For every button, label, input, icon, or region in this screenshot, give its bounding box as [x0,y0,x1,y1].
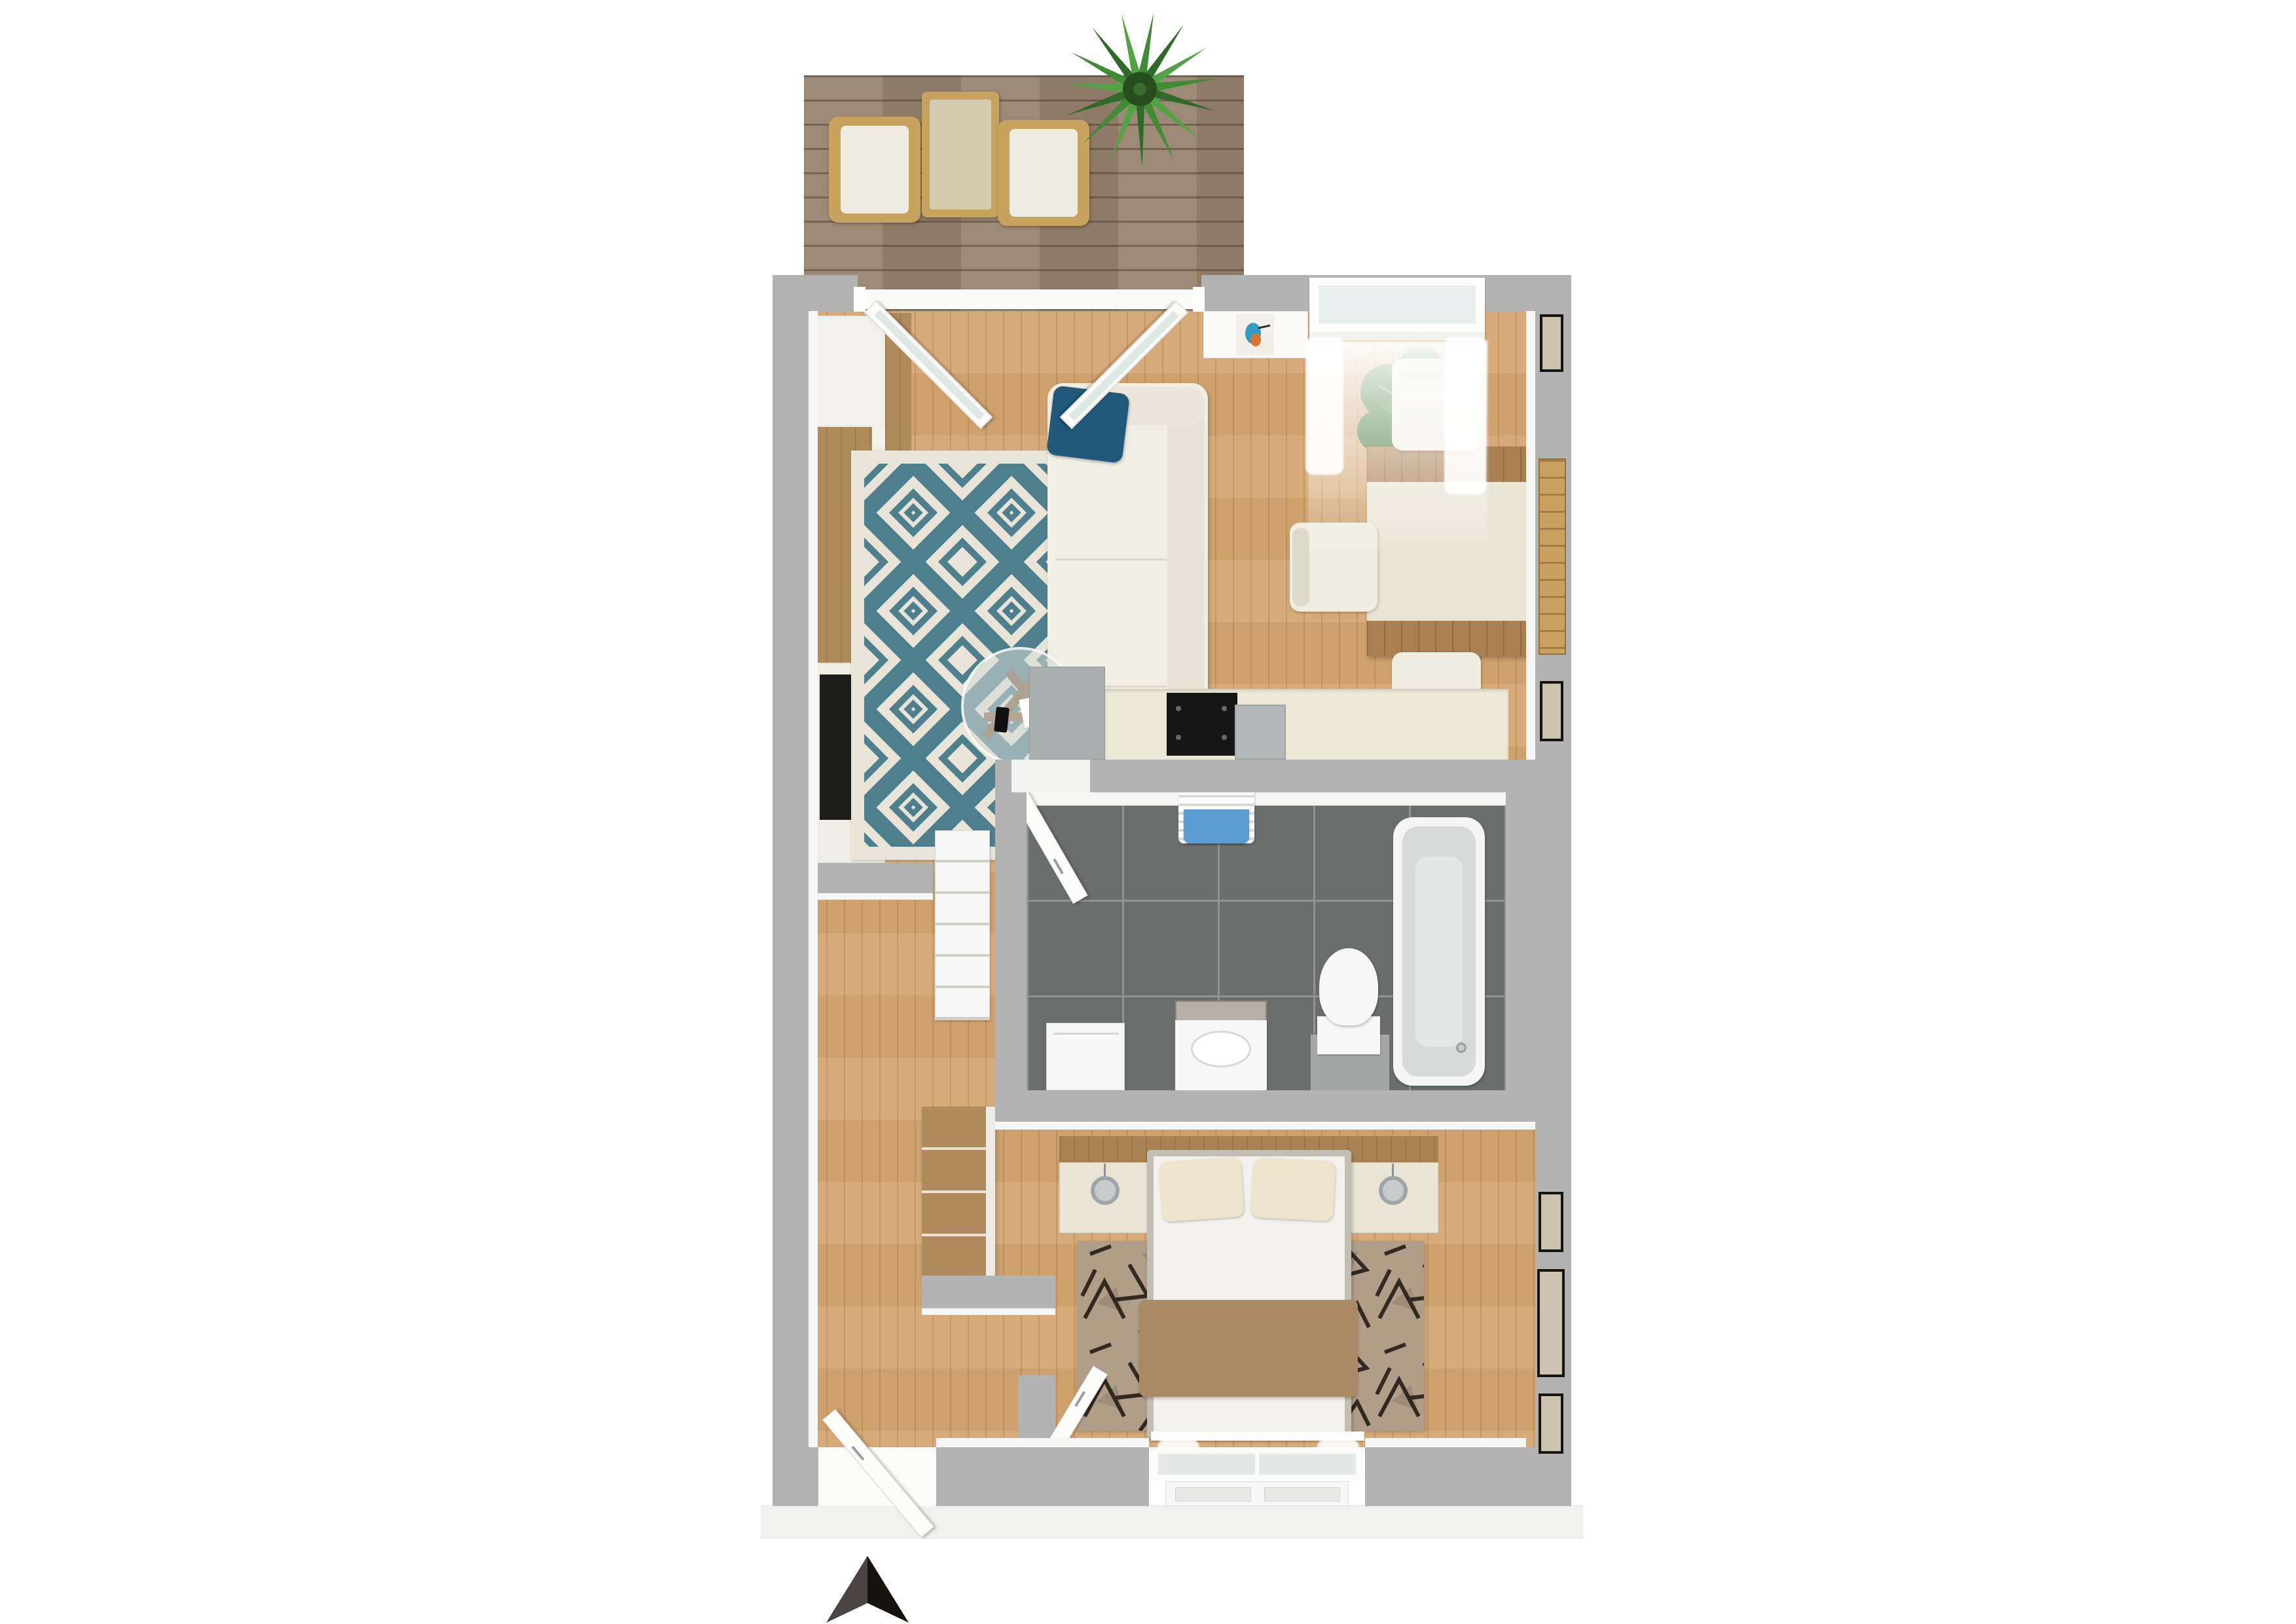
washing-machine-lid-line [1053,1033,1119,1035]
wall-bath-top-left [995,760,1011,792]
wall-face [922,1308,1055,1315]
pendant-lamp-left [1091,1176,1120,1205]
kitchen-sink [1235,705,1286,760]
wall-bottom-right [1365,1447,1571,1506]
hall-closet [922,1107,995,1277]
floorplan-canvas [0,0,2296,1624]
north-arrow-icon [818,1553,917,1624]
bath-door-threshold [1011,760,1090,792]
wall-bath-top [1090,760,1535,792]
pendant-lamp-right [1379,1176,1408,1205]
wall-bottom-mid [936,1447,1149,1506]
table-glass-top [930,100,991,210]
wall-bath-right-pocket [1506,760,1535,1130]
burner [1222,706,1227,711]
burner [1176,735,1181,740]
burner [1176,706,1181,711]
towel [1184,809,1249,843]
tall-wall-art [1539,458,1566,655]
dining-window [1309,278,1485,341]
pillow [1250,1157,1336,1221]
balcony-chair [829,117,920,223]
french-door-jamb [854,287,866,312]
ladder-shelf-cabinet [935,830,990,1020]
burner [1222,735,1227,740]
sheer-curtain-left [1305,337,1343,475]
bedroom-framed-picture [1539,1393,1563,1454]
wall-face [936,1438,1149,1447]
bedroom-window [1149,1447,1365,1481]
bedroom-framed-picture [1537,1269,1565,1377]
radiator-panel [1175,1487,1251,1502]
bedroom-framed-picture [1539,1192,1563,1252]
pedestal-sink [1175,1020,1267,1090]
tv [820,674,851,820]
foundation-band [761,1505,1583,1539]
living-white-cabinet [811,316,885,428]
kitchen-tall-unit [1029,667,1105,760]
french-door-threshold [858,289,1201,309]
bathroom-top-wall-face [1027,792,1507,805]
bath-faucet-icon [1456,1043,1467,1053]
balcony-table [922,92,999,217]
wall-bottom-left [773,1447,818,1506]
sink-basin [1191,1031,1251,1067]
wall-face [809,311,818,1447]
toilet-bowl [1319,948,1378,1025]
palm-plant [1053,5,1227,174]
washing-machine [1046,1023,1125,1090]
framed-picture [1540,681,1563,741]
sofa-cushion-seam [1055,559,1167,561]
wall-face [1526,311,1535,760]
wall-left [773,275,809,1506]
french-door-jamb [1193,287,1205,312]
wall-face [812,893,933,900]
sheer-curtain-right [1444,337,1486,494]
chair-cushion [841,126,909,213]
kingfisher-picture [1236,314,1274,356]
bathtub [1393,817,1485,1086]
bedroom-radiator [1165,1481,1349,1506]
window-glass [1319,286,1476,323]
closet-white-edge [986,1107,995,1277]
wall-face [995,1122,1535,1130]
window-glass [1158,1454,1255,1475]
cooktop [1167,693,1237,756]
window-glass [1259,1454,1356,1475]
kitchen-counter [1105,689,1508,760]
framed-picture [1540,314,1563,372]
wall-bath-left [995,792,1027,1090]
phone [994,707,1010,733]
pillow [1158,1156,1245,1223]
wall-face [1365,1438,1526,1447]
radiator-panel [1264,1487,1340,1502]
bathtub-basin-floor [1415,857,1463,1046]
tan-blanket [1139,1300,1358,1397]
